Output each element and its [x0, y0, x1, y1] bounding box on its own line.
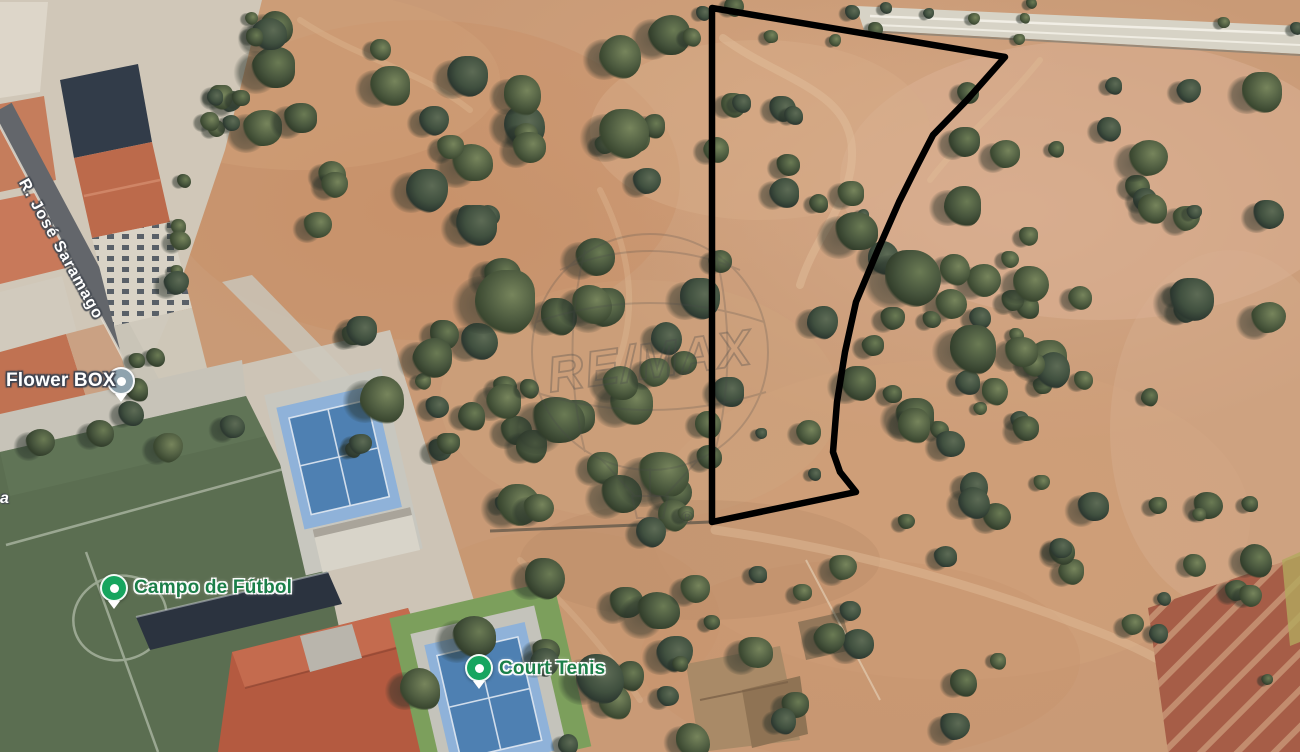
court-tenis-label[interactable]: Court Tenis: [499, 658, 605, 680]
building-roof-dark: [60, 64, 152, 158]
flower-box-label[interactable]: Flower BOX: [6, 370, 116, 392]
campo-de-futbol-pin[interactable]: [100, 574, 128, 602]
terrain-layer: [0, 0, 1300, 752]
satellite-map[interactable]: RE/MAX ® R. José Saramago a Flower BOX C…: [0, 0, 1300, 752]
court-tenis-pin[interactable]: [465, 654, 493, 682]
edge-street-label-fragment: a: [0, 490, 9, 508]
campo-de-futbol-label[interactable]: Campo de Fútbol: [134, 577, 292, 599]
